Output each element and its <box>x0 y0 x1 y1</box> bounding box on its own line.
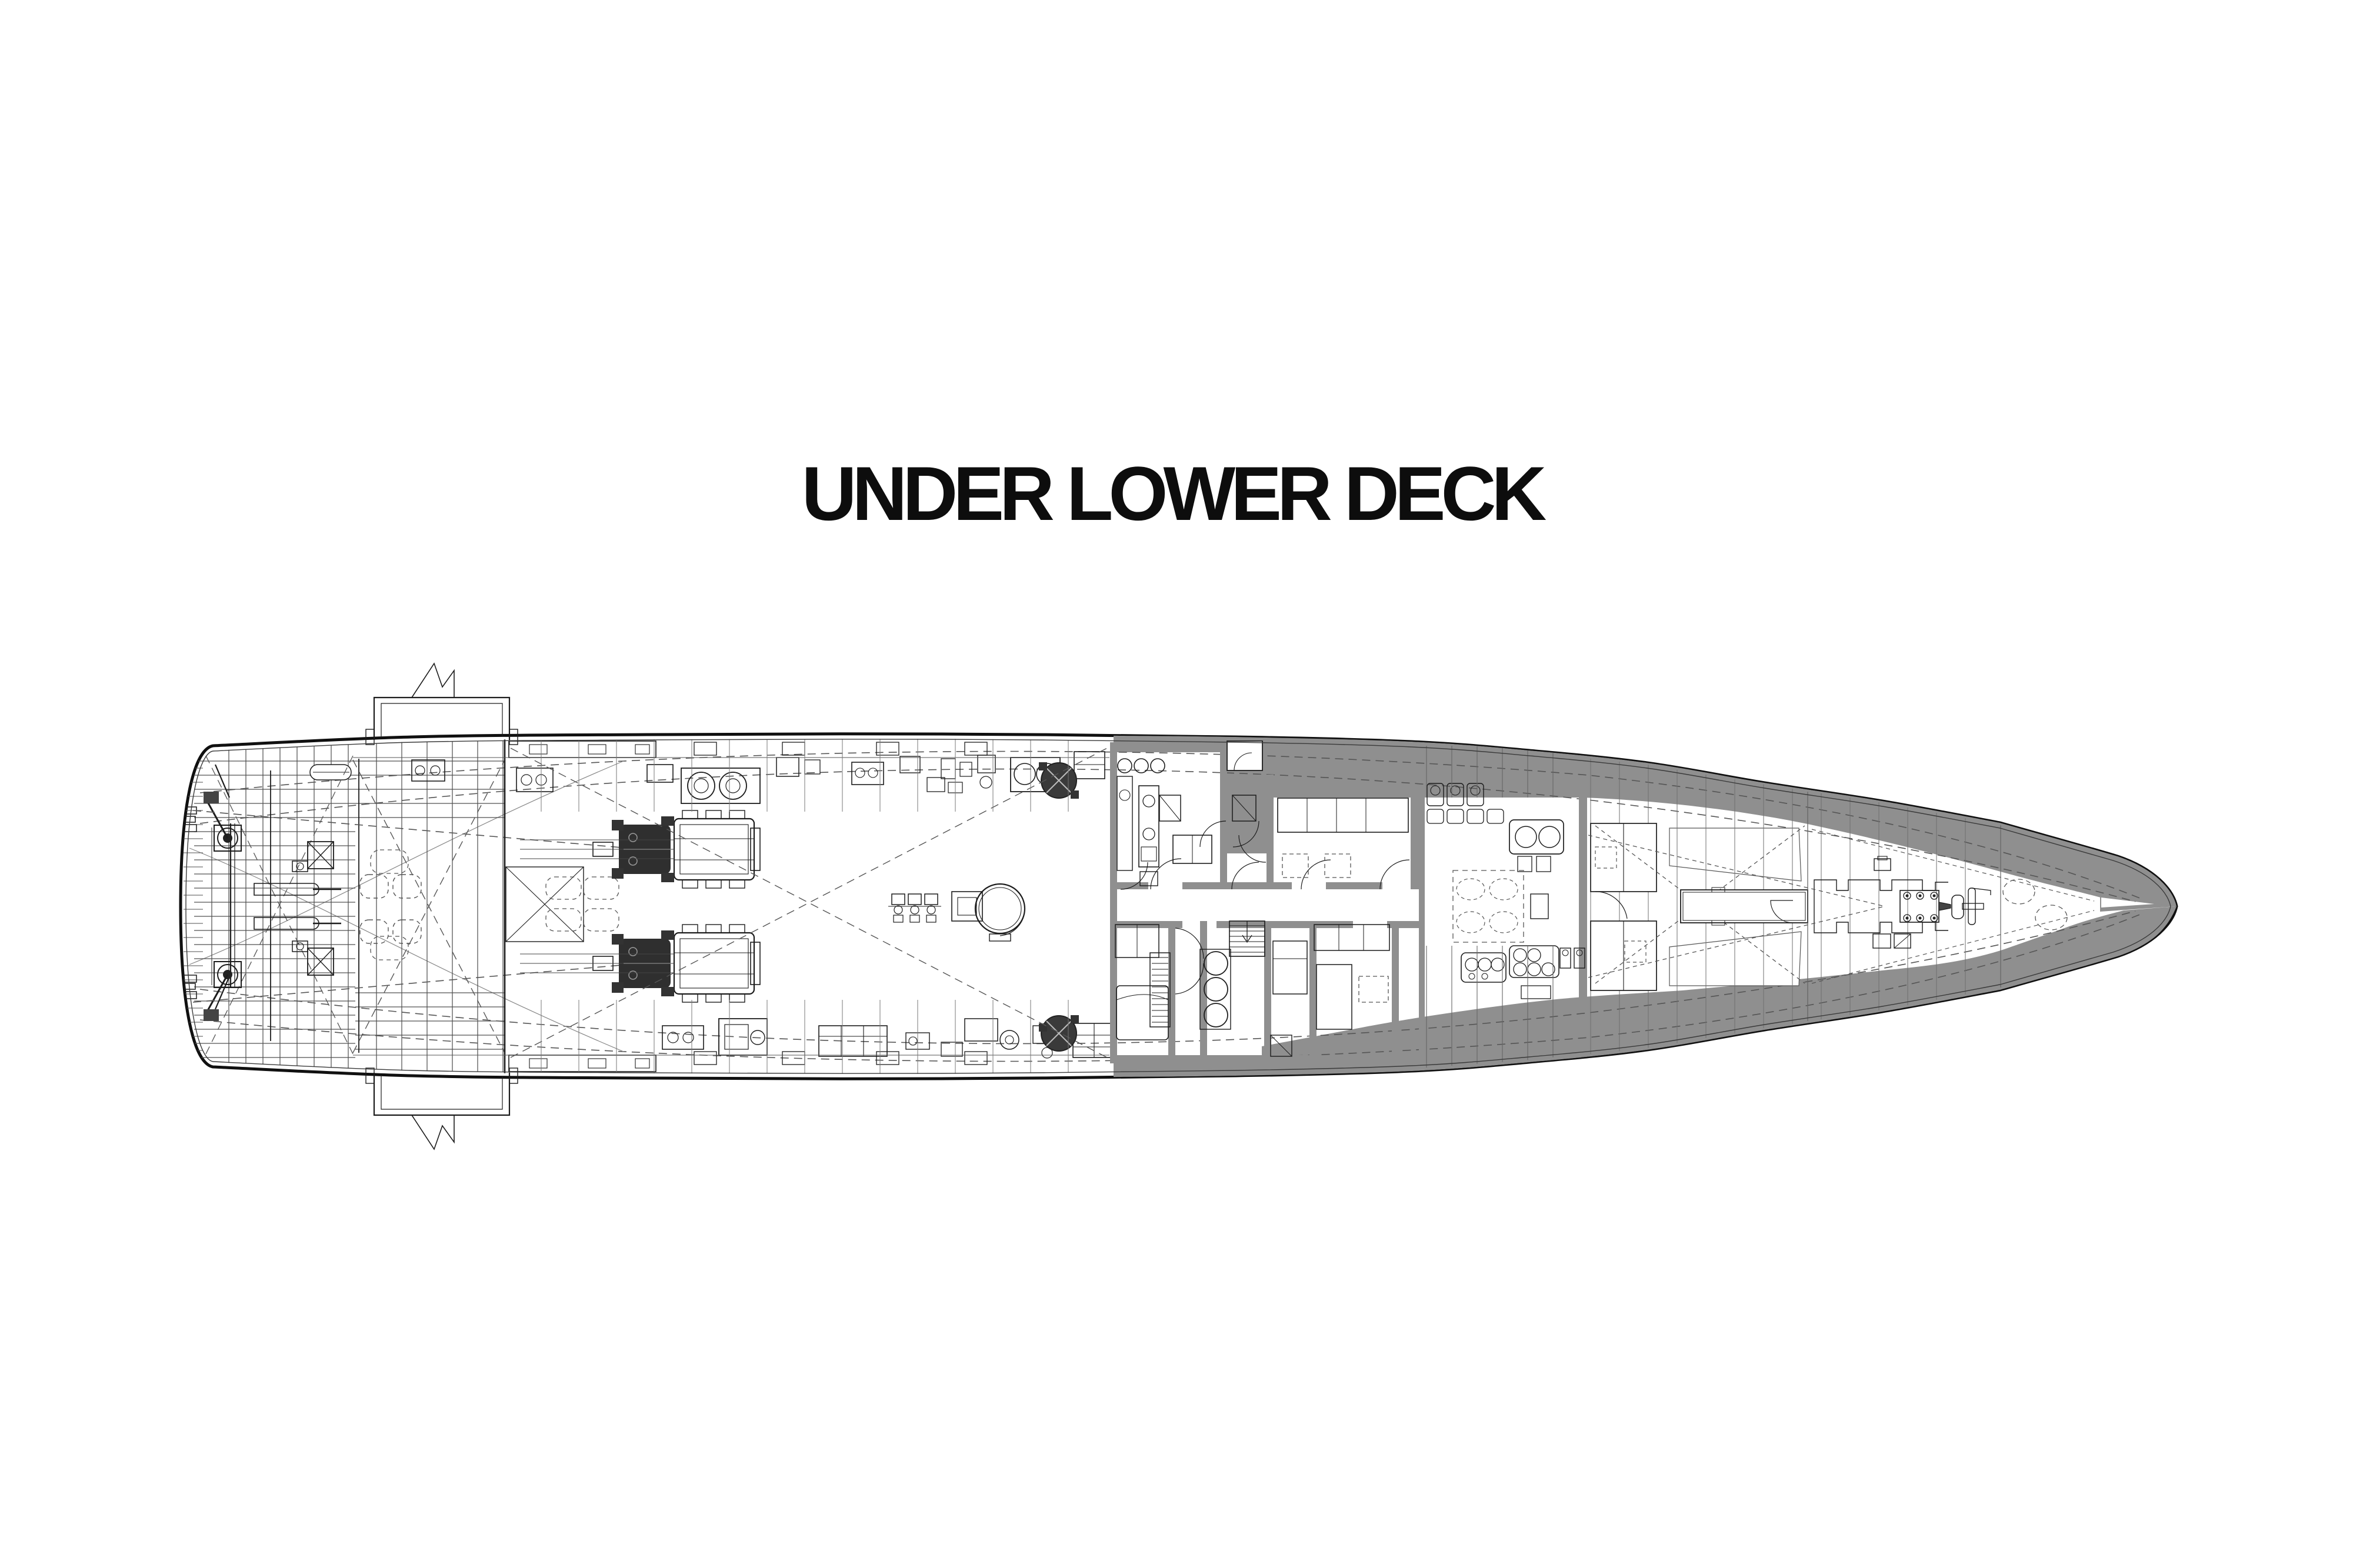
svg-text:UNDER LOWER DECK: UNDER LOWER DECK <box>802 451 1547 536</box>
